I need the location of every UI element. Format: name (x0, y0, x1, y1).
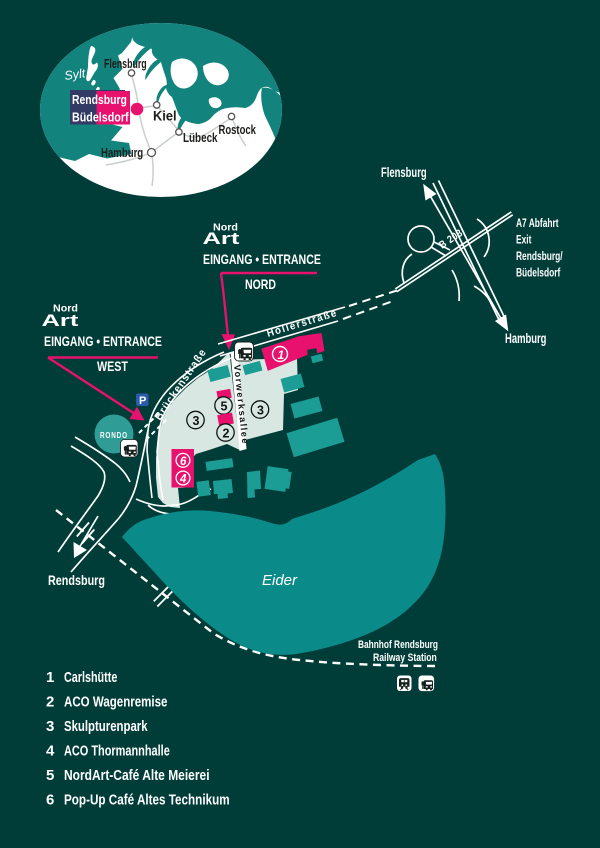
svg-text:6: 6 (180, 456, 187, 468)
svg-text:1: 1 (46, 669, 54, 686)
svg-text:Büdelsdorf: Büdelsdorf (72, 110, 129, 125)
svg-text:Rendsburg/: Rendsburg/ (516, 251, 563, 264)
svg-text:EINGANG • ENTRANCE: EINGANG • ENTRANCE (44, 334, 162, 350)
svg-text:6: 6 (46, 792, 54, 809)
svg-text:A7 Abfahrt: A7 Abfahrt (516, 218, 559, 231)
svg-text:5: 5 (46, 767, 54, 784)
svg-text:ACO Wagenremise: ACO Wagenremise (64, 693, 167, 710)
svg-text:Skulpturenpark: Skulpturenpark (64, 717, 148, 734)
svg-text:Rendsburg: Rendsburg (72, 93, 127, 107)
svg-text:Carlshütte: Carlshütte (64, 668, 117, 685)
svg-text:Eider: Eider (262, 572, 298, 589)
svg-text:P: P (139, 395, 146, 407)
svg-text:NORD: NORD (245, 277, 276, 293)
svg-text:Hamburg: Hamburg (101, 147, 143, 161)
svg-text:RONDO: RONDO (100, 431, 128, 440)
svg-text:Lübeck: Lübeck (183, 132, 218, 146)
svg-text:3: 3 (193, 414, 200, 428)
svg-text:4: 4 (46, 743, 55, 760)
svg-text:5: 5 (221, 400, 228, 414)
svg-text:NordArt-Café Alte Meierei: NordArt-Café Alte Meierei (64, 767, 210, 784)
svg-text:Kiel: Kiel (153, 108, 177, 123)
svg-text:Rendsburg: Rendsburg (48, 573, 105, 588)
svg-text:Railway Station: Railway Station (373, 652, 437, 664)
svg-text:Büdelsdorf: Büdelsdorf (516, 267, 561, 280)
svg-text:WEST: WEST (97, 359, 128, 374)
svg-text:Pop-Up Café Altes Technikum: Pop-Up Café Altes Technikum (64, 791, 230, 808)
svg-text:Hamburg: Hamburg (505, 331, 546, 346)
svg-text:4: 4 (179, 474, 187, 486)
svg-text:Exit: Exit (516, 234, 532, 247)
svg-text:2: 2 (223, 427, 230, 441)
svg-text:1: 1 (278, 348, 285, 362)
svg-text:Art: Art (203, 228, 240, 248)
svg-text:Bahnhof Rendsburg: Bahnhof Rendsburg (358, 639, 438, 651)
svg-text:Art: Art (42, 310, 79, 330)
svg-text:3: 3 (257, 404, 264, 418)
svg-text:Sylt: Sylt (63, 66, 86, 83)
svg-text:Rostock: Rostock (219, 124, 257, 138)
svg-text:EINGANG • ENTRANCE: EINGANG • ENTRANCE (203, 252, 321, 268)
svg-text:Flensburg: Flensburg (104, 57, 147, 71)
svg-text:ACO Thormannhalle: ACO Thormannhalle (64, 742, 170, 759)
svg-text:3: 3 (46, 718, 54, 735)
svg-text:2: 2 (46, 694, 54, 711)
svg-text:Flensburg: Flensburg (381, 165, 427, 180)
